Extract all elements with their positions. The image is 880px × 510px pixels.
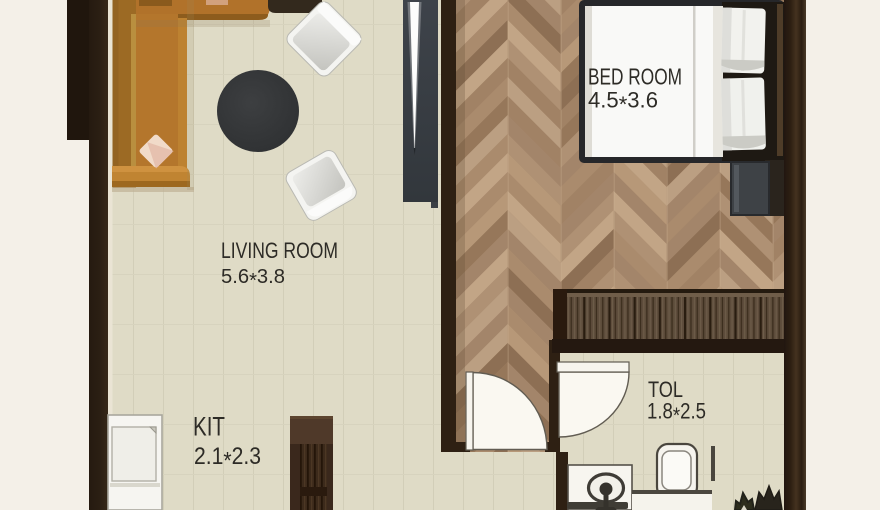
svg-text:BED ROOM: BED ROOM: [588, 64, 682, 90]
svg-text:KIT: KIT: [193, 412, 225, 442]
svg-text:2.1*2.3: 2.1*2.3: [194, 443, 261, 475]
svg-text:LIVING ROOM: LIVING ROOM: [221, 238, 338, 263]
svg-text:5.6*3.8: 5.6*3.8: [221, 265, 285, 292]
